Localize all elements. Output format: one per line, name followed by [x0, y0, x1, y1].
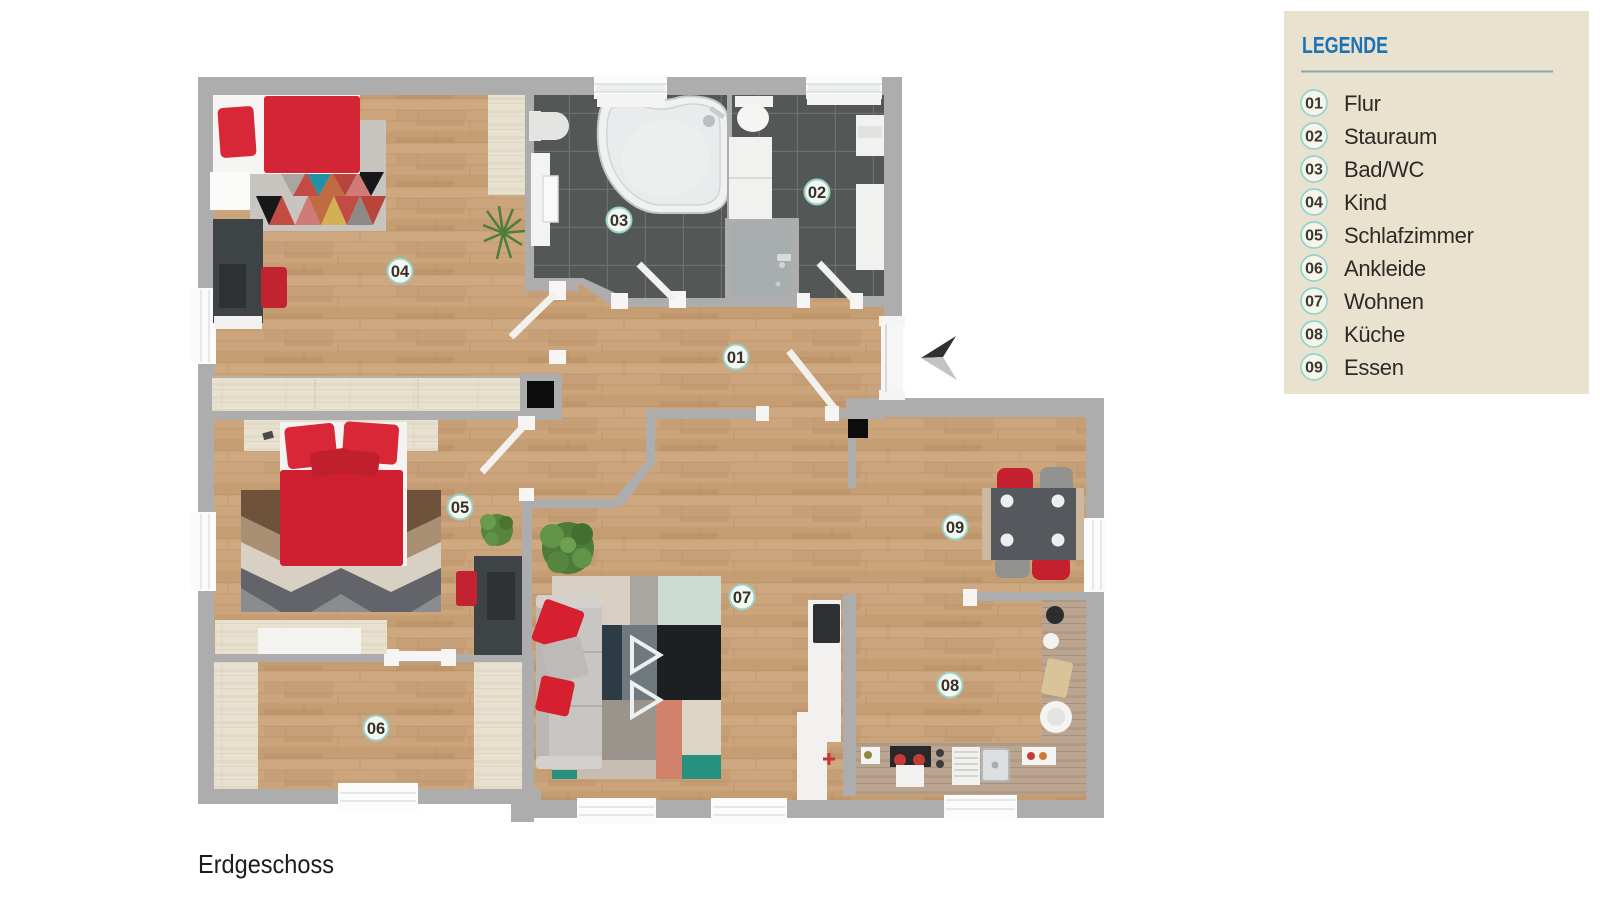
svg-text:01: 01 [727, 349, 745, 367]
svg-text:07: 07 [733, 589, 751, 607]
svg-text:01: 01 [1305, 96, 1323, 113]
svg-text:06: 06 [1305, 261, 1323, 278]
svg-text:Flur: Flur [1344, 91, 1381, 116]
svg-text:Schlafzimmer: Schlafzimmer [1344, 223, 1474, 248]
svg-text:06: 06 [367, 720, 385, 738]
svg-text:LEGENDE: LEGENDE [1302, 32, 1388, 58]
svg-text:Bad/WC: Bad/WC [1344, 157, 1425, 182]
svg-text:02: 02 [1305, 129, 1323, 146]
svg-text:Essen: Essen [1344, 355, 1404, 380]
svg-text:09: 09 [946, 519, 964, 537]
svg-text:04: 04 [1305, 195, 1323, 212]
svg-text:08: 08 [1305, 327, 1323, 344]
svg-text:03: 03 [610, 212, 628, 230]
svg-text:Ankleide: Ankleide [1344, 256, 1426, 281]
svg-text:08: 08 [941, 677, 959, 695]
svg-text:Erdgeschoss: Erdgeschoss [198, 849, 334, 879]
svg-text:05: 05 [1305, 228, 1323, 245]
svg-text:03: 03 [1305, 162, 1323, 179]
svg-text:04: 04 [391, 263, 410, 281]
svg-text:07: 07 [1305, 294, 1323, 311]
svg-text:09: 09 [1305, 360, 1323, 377]
svg-text:Küche: Küche [1344, 322, 1405, 347]
svg-text:02: 02 [808, 184, 826, 202]
svg-text:Stauraum: Stauraum [1344, 124, 1437, 149]
svg-text:Wohnen: Wohnen [1344, 289, 1424, 314]
svg-text:05: 05 [451, 499, 469, 517]
svg-text:Kind: Kind [1344, 190, 1387, 215]
